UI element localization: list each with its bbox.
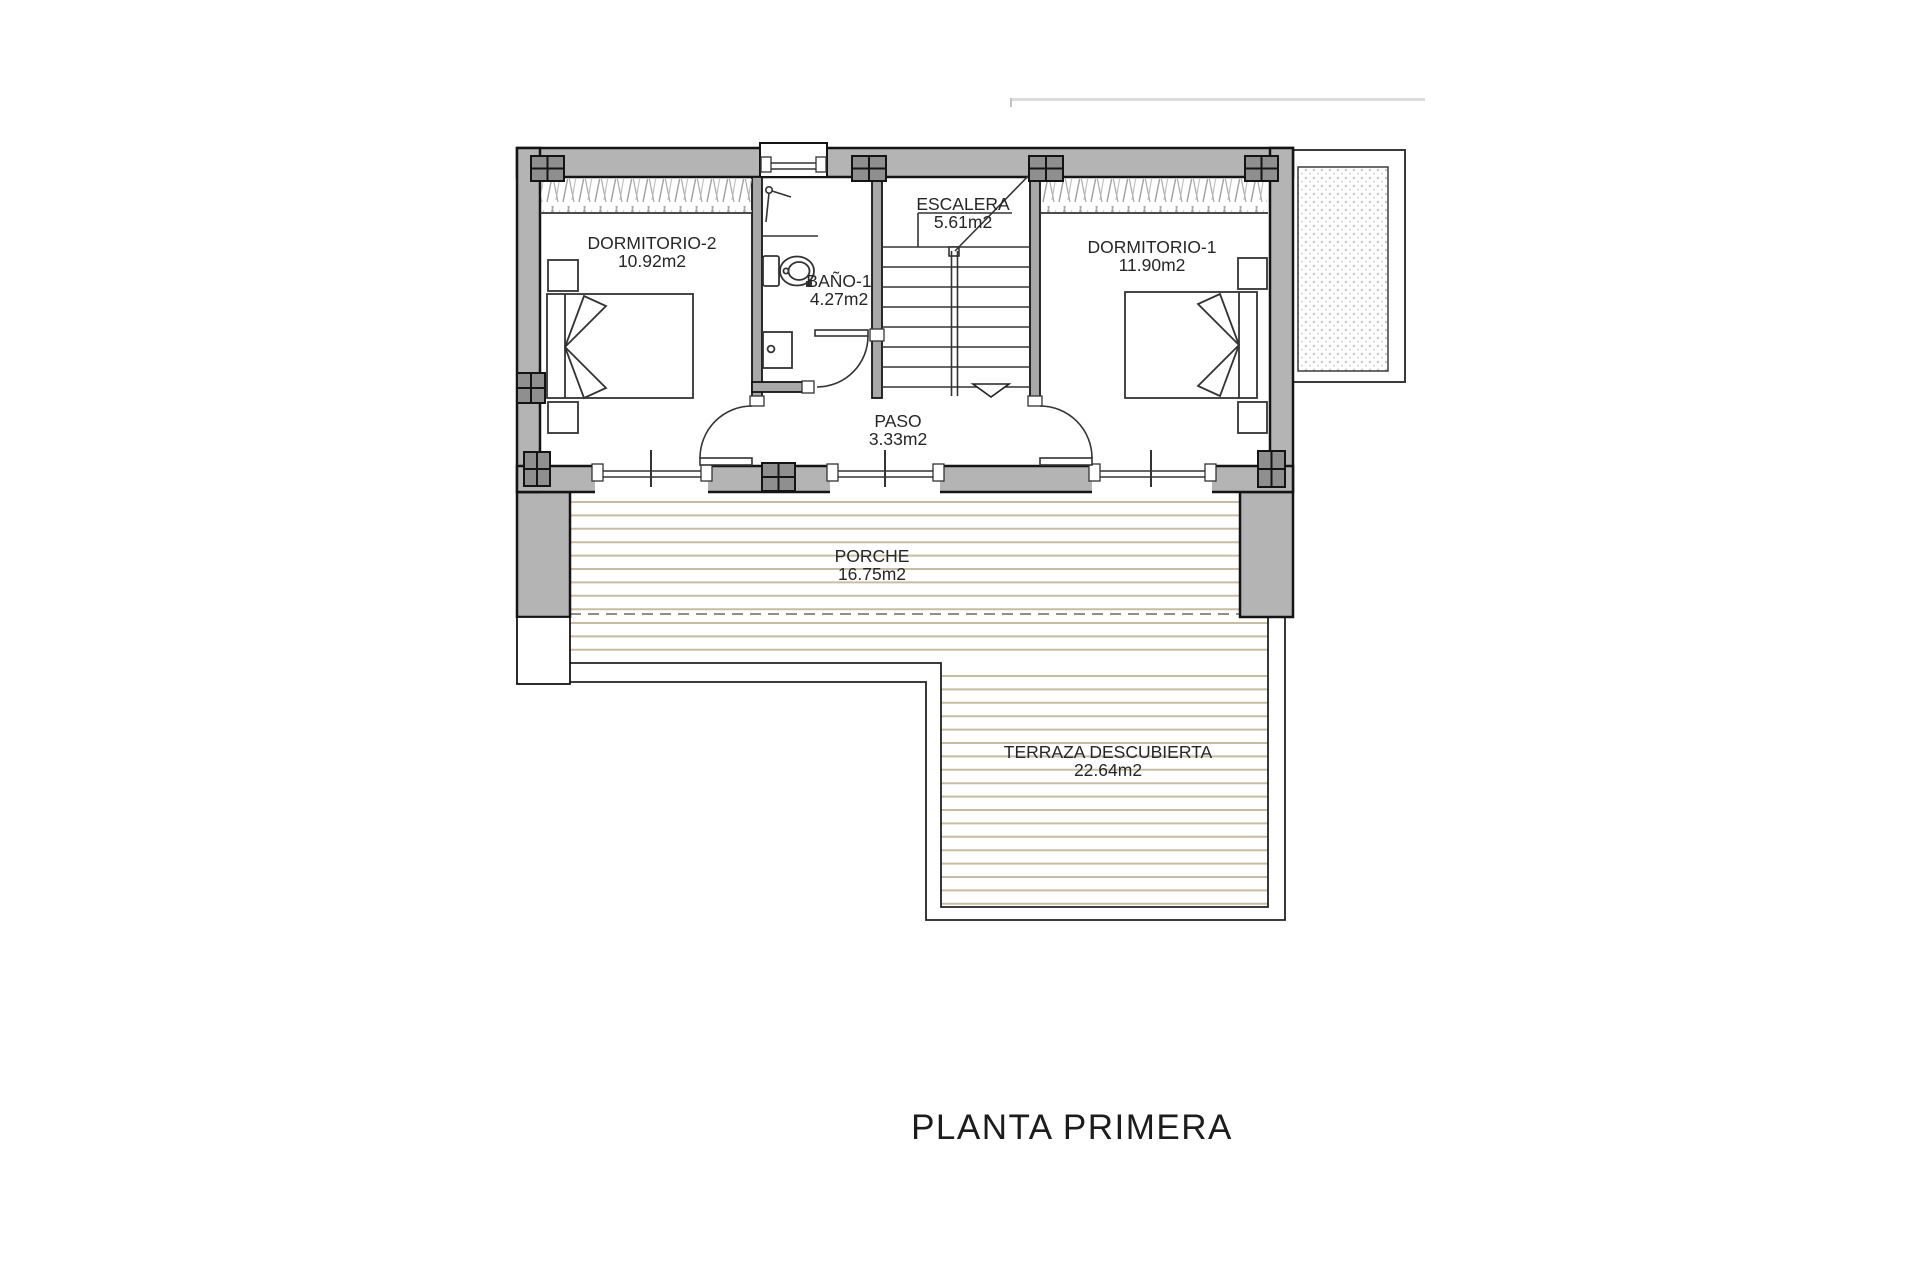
shower-icon [766, 187, 791, 222]
bathroom-door-leaf [815, 330, 868, 336]
room-name: ESCALERA [916, 195, 1009, 213]
window-porch-1 [592, 450, 712, 494]
column [762, 463, 795, 491]
wall-stair-right [1030, 177, 1040, 398]
room-label-porche: PORCHE 16.75m2 [835, 547, 910, 583]
jamb-bath-door [802, 381, 814, 393]
plan-title: PLANTA PRIMERA [911, 1108, 1233, 1148]
porch-left-wall [517, 492, 570, 617]
nightstand [1238, 258, 1267, 289]
porch-left-lower-box [517, 617, 570, 684]
room-label-escalera: ESCALERA 5.61m2 [916, 195, 1009, 231]
wall-stair-left [872, 177, 882, 398]
room-label-terraza: TERRAZA DESCUBIERTA 22.64m2 [1004, 743, 1212, 779]
left-wall [517, 148, 540, 492]
jamb-stair-wall [870, 329, 884, 341]
room-area: 3.33m2 [869, 430, 927, 448]
room-label-dormitorio-2: DORMITORIO-2 10.92m2 [588, 234, 717, 270]
room-name: DORMITORIO-1 [1088, 238, 1217, 256]
nightstand [548, 260, 578, 291]
bathroom-door [815, 330, 868, 387]
bathroom-window [760, 143, 827, 177]
jamb-dorm2-door [750, 396, 764, 406]
balcony [1293, 150, 1405, 382]
closet-dormitorio-2 [541, 179, 752, 212]
bathroom-door-arc [817, 336, 868, 387]
deck-plank-lines [570, 502, 1268, 904]
floor-plan-canvas: DORMITORIO-2 10.92m2 BAÑO-1 4.27m2 ESCAL… [0, 0, 1920, 1280]
bottom-windows [592, 450, 1216, 494]
wall-dorm2-bath [752, 177, 762, 398]
room-area: 10.92m2 [588, 252, 717, 270]
room-name: PASO [869, 412, 927, 430]
window-porch-2 [827, 450, 944, 494]
room-area: 4.27m2 [806, 290, 871, 308]
column [531, 156, 564, 181]
door-arc [700, 406, 752, 458]
porch-right-wall [1240, 492, 1293, 617]
nightstand [548, 402, 578, 433]
door-arc [1040, 406, 1092, 458]
window-porch-3 [1089, 450, 1216, 494]
door-leaf [1040, 458, 1092, 465]
room-label-dormitorio-1: DORMITORIO-1 11.90m2 [1088, 238, 1217, 274]
wall-bath-bottom [752, 382, 804, 392]
room-name: TERRAZA DESCUBIERTA [1004, 743, 1212, 761]
room-label-bano-1: BAÑO-1 4.27m2 [806, 272, 871, 308]
dormitorio-1-furniture [1125, 258, 1267, 433]
column [517, 373, 545, 403]
balcony-floor-stipple [1298, 167, 1388, 371]
top-wall [517, 148, 1293, 177]
column [524, 452, 550, 486]
nightstand [1238, 402, 1267, 433]
dormitorio-2-furniture [547, 260, 693, 433]
room-area: 5.61m2 [916, 213, 1009, 231]
column [1029, 156, 1063, 181]
room-area: 22.64m2 [1004, 761, 1212, 779]
closet-dormitorio-1 [1041, 179, 1267, 212]
stair-down-arrow-icon [973, 384, 1009, 397]
room-area: 16.75m2 [835, 565, 910, 583]
room-area: 11.90m2 [1088, 256, 1217, 274]
door-leaf [700, 458, 752, 465]
room-name: PORCHE [835, 547, 910, 565]
dormitorio-2-door [700, 406, 752, 465]
column [1245, 156, 1278, 181]
room-label-paso: PASO 3.33m2 [869, 412, 927, 448]
floor-plan-drawing [0, 0, 1920, 1280]
jamb-dorm1-door [1028, 396, 1042, 406]
dormitorio-1-door [1040, 406, 1092, 465]
room-name: BAÑO-1 [806, 272, 871, 290]
column [1258, 451, 1285, 487]
column [852, 156, 886, 181]
right-wall [1270, 148, 1293, 490]
sink-icon [763, 332, 792, 368]
closets [540, 179, 1268, 213]
bed-icon [1125, 292, 1257, 398]
bed-icon [547, 294, 693, 398]
room-name: DORMITORIO-2 [588, 234, 717, 252]
